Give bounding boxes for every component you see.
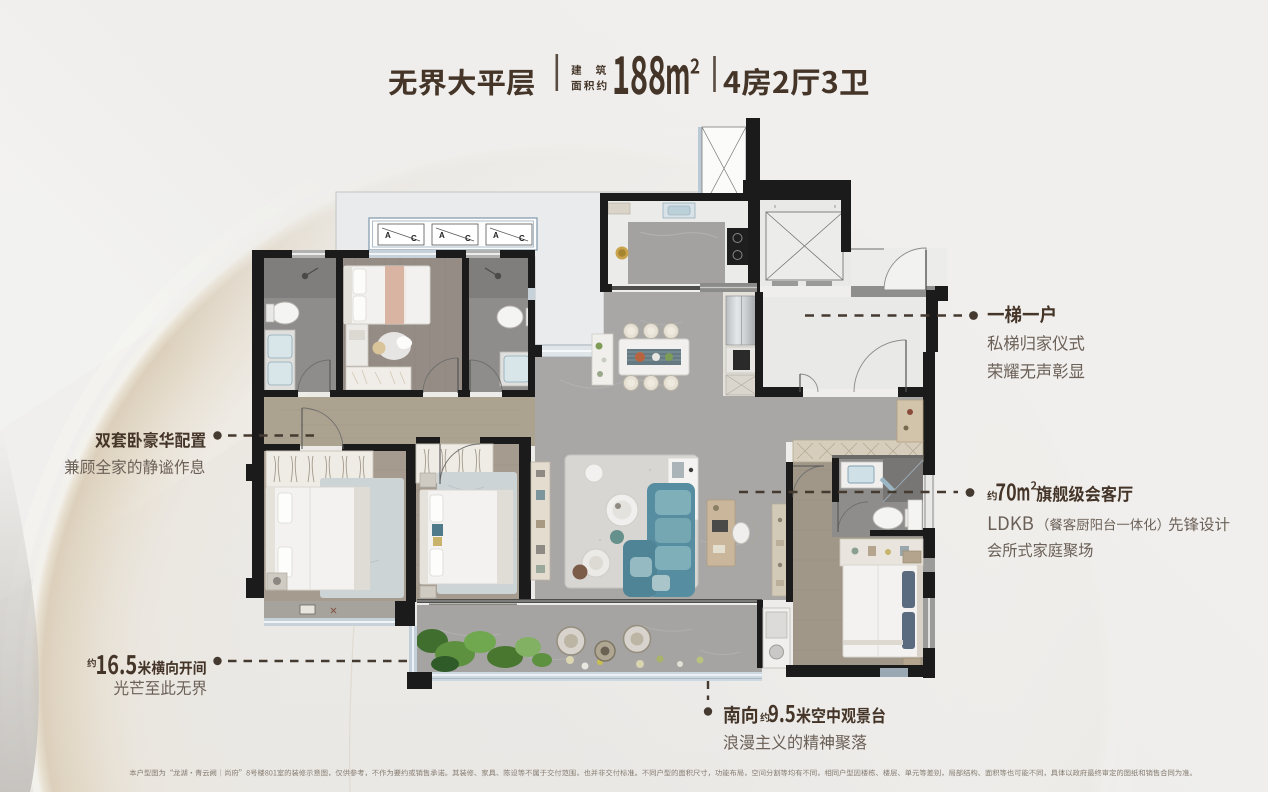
svg-text:C: C [465, 234, 471, 243]
svg-text:C: C [519, 234, 525, 243]
svg-text:C: C [411, 234, 417, 243]
svg-text:A: A [385, 231, 391, 240]
svg-text:A: A [439, 231, 445, 240]
svg-text:A: A [493, 231, 499, 240]
